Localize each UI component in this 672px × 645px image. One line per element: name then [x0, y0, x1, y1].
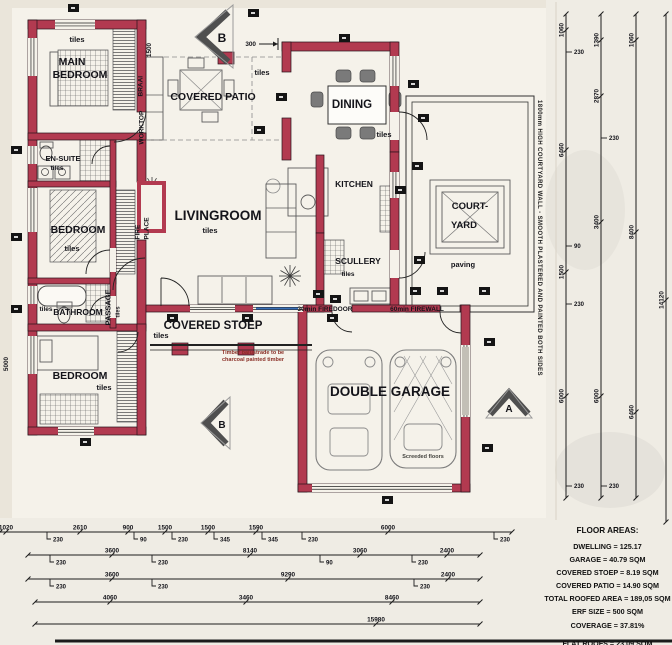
note-timber-balustrade-1: Timber balustrade to be: [222, 351, 284, 357]
dim-label: 345: [268, 538, 279, 544]
floor-areas-row: ERF SIZE = 500 SQM: [543, 607, 672, 616]
finish-label-tiles: tiles: [69, 36, 84, 44]
chair: [360, 70, 375, 82]
room-label-dining: DINING: [332, 100, 372, 112]
dim-label: 230: [158, 561, 169, 567]
tiled-area: [40, 394, 98, 424]
floor-areas-row: TOTAL ROOFED AREA = 189,05 SQM: [543, 594, 672, 603]
chair: [360, 127, 375, 139]
floor-areas-row: GARAGE = 40.79 SQM: [543, 555, 672, 564]
wall: [28, 278, 116, 284]
room-label-courtyard-1: COURT-: [452, 202, 488, 212]
window: [390, 56, 399, 86]
dim-label: 230: [574, 484, 585, 490]
room-label-courtyard-2: YARD: [451, 221, 477, 231]
wall: [282, 42, 398, 51]
finish-label-tiles: tiles: [50, 166, 63, 173]
dim-label: 230: [308, 538, 319, 544]
dim-label: 4060: [103, 595, 118, 602]
floor-areas-table: FLOOR AREAS: DWELLING = 125.17 GARAGE = …: [543, 526, 672, 645]
dim-label: 8400: [629, 224, 636, 239]
room-label-main-bedroom-2: BEDROOM: [53, 70, 108, 81]
room-label-bedroom-bottom: BEDROOM: [53, 371, 108, 382]
room-label-covered-patio: COVERED PATIO: [170, 92, 255, 103]
cupboard: [117, 330, 139, 422]
dim-label: 230: [420, 585, 431, 591]
wall: [28, 181, 116, 187]
dim-label: 9290: [281, 572, 296, 579]
room-label-passage: PASSAGE: [105, 289, 113, 325]
dim-label: 2610: [73, 525, 88, 532]
floor-areas-row: COVERED STOEP = 8.19 SQM: [543, 568, 672, 577]
dim-label: 230: [178, 538, 189, 544]
dim-label: 6000: [381, 525, 396, 532]
dim-label: 1060: [629, 32, 636, 47]
dim-label: 230: [609, 484, 620, 490]
cupboard: [113, 26, 135, 110]
dim-label: 230: [158, 585, 169, 591]
dim-label: 230: [418, 561, 429, 567]
note-timber-balustrade-2: charcoal painted timber: [222, 358, 284, 364]
dim-label: 1390: [594, 32, 601, 47]
room-label-bedroom-mid: BEDROOM: [51, 225, 106, 236]
note-garage-floor: Screeded floors: [402, 455, 444, 461]
dim-label: 230: [53, 538, 64, 544]
note-firedoor: 30min FIREDOOR: [298, 307, 353, 314]
floor-areas-title: FLOOR AREAS:: [543, 526, 672, 535]
door-opening: [110, 248, 116, 272]
window: [58, 427, 94, 435]
floor-areas-row: DWELLING = 125.17: [543, 542, 672, 551]
room-label-livingroom: LIVINGROOM: [175, 209, 262, 223]
dim-label: 230: [574, 50, 585, 56]
wall: [137, 324, 146, 435]
finish-label-tiles: tiles: [96, 384, 111, 392]
window: [190, 305, 235, 312]
wall: [137, 240, 146, 328]
room-label-scullery: SCULLERY: [335, 257, 381, 266]
floor-areas-flat-roofs: FLAT ROOFS = 23.09 SQM: [543, 639, 672, 645]
dim-label: 6000: [559, 388, 566, 403]
dim-label: 3400: [594, 214, 601, 229]
room-label-braai: BRAAI: [139, 76, 146, 97]
dim-label: 900: [123, 525, 134, 532]
room-label-fireplace-2: PLACE: [145, 217, 152, 239]
finish-label-tiles: tiles: [341, 272, 354, 279]
room-label-double-garage: DOUBLE GARAGE: [330, 385, 450, 399]
dim-label: 2400: [441, 572, 456, 579]
window: [28, 286, 37, 304]
dim-label: 90: [140, 538, 147, 544]
dim-label: 6460: [629, 404, 636, 419]
room-label-fireplace-1: FIRE: [136, 225, 143, 240]
dim-label: 345: [220, 538, 231, 544]
room-label-kitchen: KITCHEN: [335, 180, 373, 189]
chair: [336, 127, 351, 139]
chair: [336, 70, 351, 82]
finish-label-tiles: tiles: [376, 131, 391, 139]
dim-label: 300: [245, 41, 256, 48]
floor-areas-row: COVERAGE = 37.81%: [543, 621, 672, 630]
window: [312, 484, 452, 492]
wall: [316, 155, 324, 233]
dim-label: 3600: [105, 548, 120, 555]
room-label-bathroom: BATHROOM: [53, 308, 102, 317]
room-label-covered-stoep: COVERED STOEP: [164, 321, 263, 333]
finish-label-paving: paving: [451, 261, 475, 269]
finish-label-tiles: tiles: [153, 332, 168, 340]
dim-label: 90: [326, 561, 333, 567]
dim-label: 8140: [243, 548, 258, 555]
dim-label: 230: [500, 538, 511, 544]
dim-label: 3460: [239, 595, 254, 602]
note-firewall: 60min FIREWALL: [390, 307, 444, 314]
dim-label: 6460: [559, 142, 566, 157]
dim-label: 1500: [201, 525, 216, 532]
finish-label-tiles: tiles: [39, 307, 52, 314]
dim-label: 230: [56, 585, 67, 591]
section-letter: A: [505, 404, 512, 415]
dim-label: 230: [574, 302, 585, 308]
dim-label: 2870: [594, 88, 601, 103]
window: [28, 188, 37, 232]
dim-label: 2400: [440, 548, 455, 555]
wall: [298, 305, 307, 492]
window: [28, 336, 37, 374]
room-label-main-bedroom-1: MAIN: [59, 57, 86, 68]
window: [390, 172, 399, 198]
wall: [282, 42, 291, 72]
wall: [316, 233, 324, 312]
finish-label-tiles: tiles: [254, 69, 269, 77]
dim-label: 1500: [146, 42, 153, 57]
wall: [28, 324, 146, 331]
window: [55, 20, 95, 29]
dim-label: 230: [56, 561, 67, 567]
dim-label: 1500: [158, 525, 173, 532]
door-opening: [390, 250, 399, 278]
dim-label: 1020: [0, 525, 14, 532]
finish-label-tiles: tiles: [64, 245, 79, 253]
finish-label-tiles: tiles: [117, 306, 123, 317]
dim-label: 1500: [559, 264, 566, 279]
window: [28, 38, 37, 76]
dim-label: 230: [609, 136, 620, 142]
room-label-en-suite: EN-SUITE: [45, 155, 80, 163]
dim-label: 14120: [659, 291, 666, 309]
dim-label: 15980: [367, 617, 385, 624]
chair: [311, 92, 323, 107]
dim-label: 1060: [559, 22, 566, 37]
room-label-worktop: WORKTOP: [140, 111, 147, 145]
section-letter: B: [218, 420, 225, 431]
wall: [137, 20, 146, 112]
finish-label-tiles: tiles: [202, 227, 217, 235]
dim-label: 1590: [249, 525, 264, 532]
dim-label: 3060: [353, 548, 368, 555]
dim-label: 6000: [594, 388, 601, 403]
window: [28, 146, 37, 164]
wall: [282, 118, 291, 160]
dim-label: 90: [574, 244, 581, 250]
section-letter: B: [218, 31, 227, 45]
note-courtyard-wall: 1800mm HIGH COURTYARD WALL - SMOOTH PLAS…: [536, 100, 542, 345]
dim-label: 8460: [385, 595, 400, 602]
tiled-area: [80, 137, 112, 183]
floor-plan-sheet: BBA1020230261090090150023015003451590345…: [0, 0, 672, 645]
dim-label: 5000: [3, 356, 10, 371]
floor-areas-row: COVERED PATIO = 14.90 SQM: [543, 581, 672, 590]
dim-label: 3600: [105, 572, 120, 579]
